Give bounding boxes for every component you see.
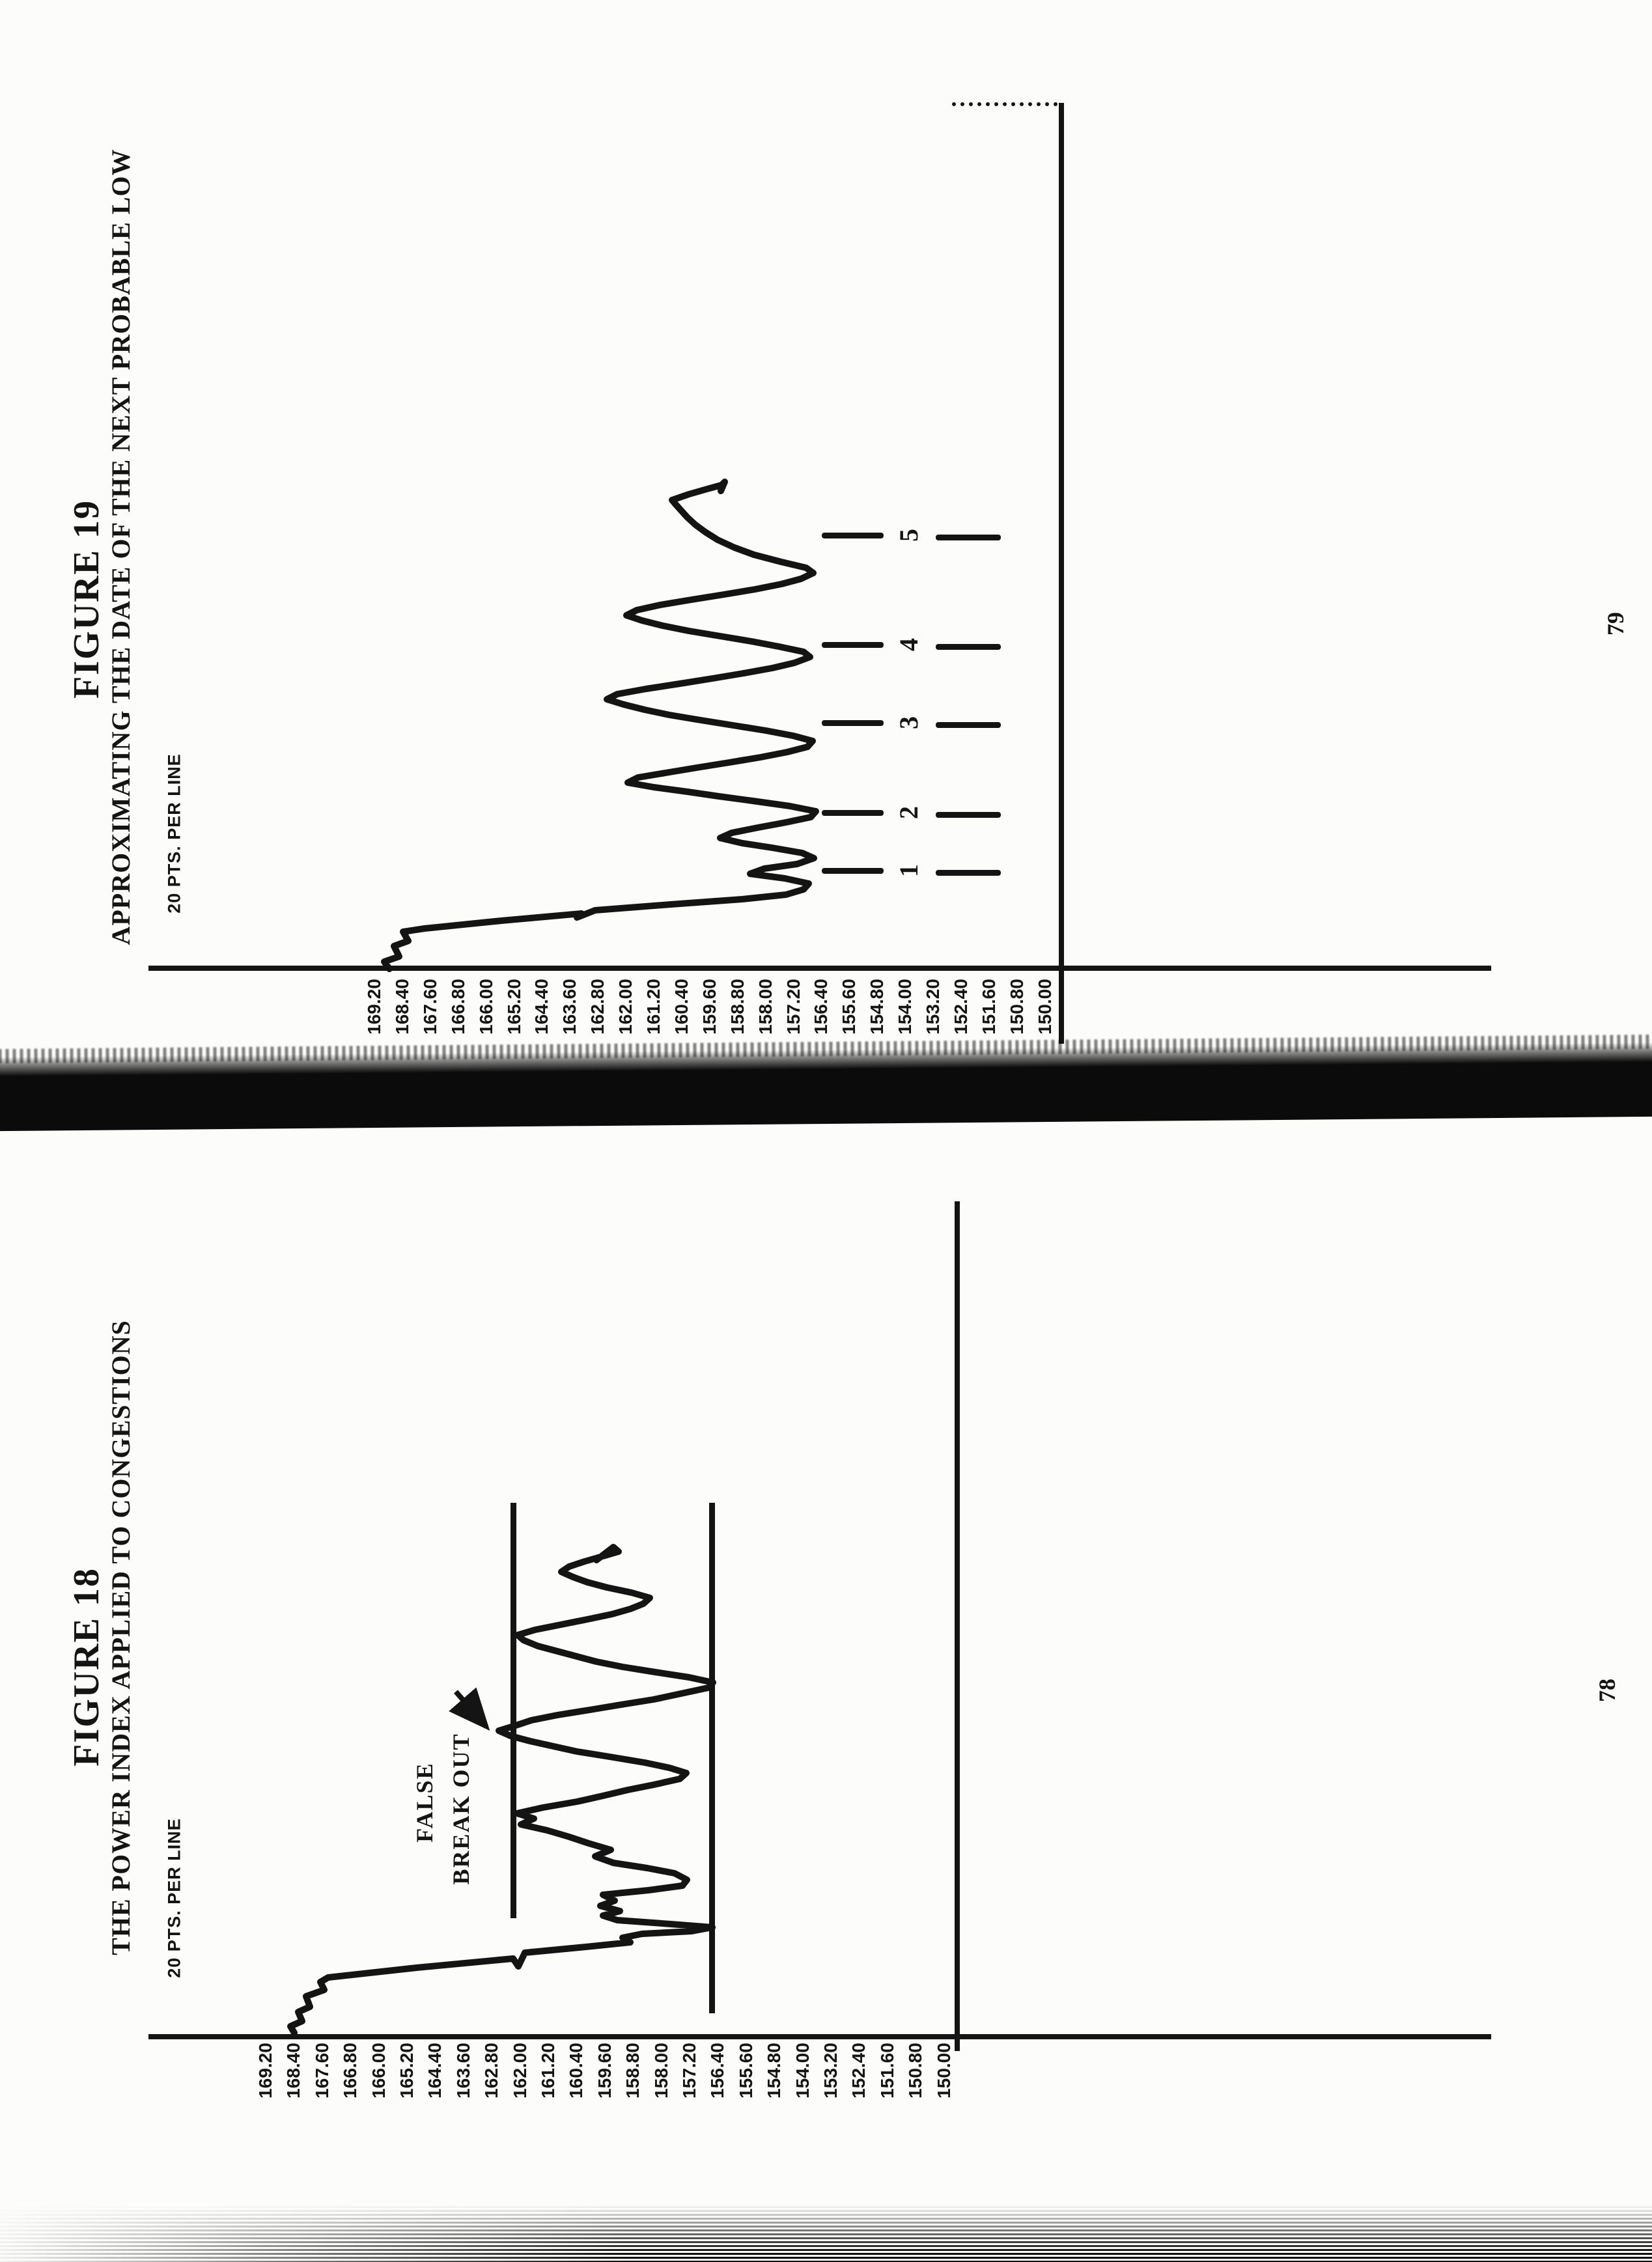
- dotted-guide-dot: [1011, 102, 1015, 106]
- axis-tick-label: 158.00: [652, 2043, 671, 2099]
- axis-tick-label: 166.80: [449, 979, 468, 1035]
- projection-dash-right: [936, 644, 1001, 650]
- price-curve-figure18: [290, 1547, 713, 2033]
- projection-mark-number: 5: [896, 529, 922, 542]
- false-breakout-label-line1: FALSE: [413, 1762, 436, 1842]
- axis-tick-label: 160.40: [673, 979, 691, 1035]
- dotted-guide-dot: [1003, 102, 1007, 106]
- projection-mark-number: 2: [896, 806, 922, 819]
- projection-dash-right: [936, 812, 1001, 818]
- axis-tick-label: 154.00: [896, 979, 914, 1035]
- axis-tick-label: 158.80: [624, 2043, 642, 2099]
- axis-tick-label: 166.00: [477, 979, 496, 1035]
- false-breakout-label-line2: BREAK OUT: [449, 1733, 473, 1884]
- axis-tick-label: 165.20: [505, 979, 524, 1035]
- dotted-guide-dot: [986, 102, 990, 106]
- axis-tick-label: 150.80: [1008, 979, 1026, 1035]
- dotted-guide-dot: [1037, 102, 1041, 106]
- figure18-congestion-upper-line: [511, 1503, 516, 1918]
- figure19-label: FIGURE 19: [68, 499, 105, 699]
- book-gutter-shadow: [0, 1042, 1652, 1132]
- book-scan-spread: FIGURE 19 APPROXIMATING THE DATE OF THE …: [0, 0, 1652, 2262]
- figure19-price-axis-line: [148, 966, 1491, 971]
- axis-tick-label: 162.00: [617, 979, 635, 1035]
- page-number-78: 78: [1595, 1679, 1619, 1702]
- axis-tick-label: 156.40: [812, 979, 830, 1035]
- dotted-guide-dot: [977, 102, 981, 106]
- axis-tick-label: 162.80: [483, 2043, 501, 2099]
- figure18-price-axis-line: [148, 2034, 1491, 2039]
- figure19-baseline-150-line: [1059, 103, 1064, 1044]
- axis-tick-label: 150.80: [906, 2043, 925, 2099]
- dotted-guide-dot: [1045, 102, 1049, 106]
- axis-tick-label: 151.60: [980, 979, 998, 1035]
- axis-tick-label: 164.40: [426, 2043, 444, 2099]
- axis-tick-label: 154.80: [765, 2043, 783, 2099]
- dotted-guide-dot: [969, 102, 973, 106]
- axis-tick-label: 150.00: [935, 2043, 953, 2099]
- figure19-title: APPROXIMATING THE DATE OF THE NEXT PROBA…: [108, 148, 134, 945]
- axis-tick-label: 153.20: [924, 979, 942, 1035]
- dotted-guide-dot: [1028, 102, 1032, 106]
- projection-dash-right: [936, 722, 1001, 728]
- projection-mark-number: 4: [896, 638, 922, 651]
- projection-dash-left: [822, 868, 884, 874]
- dotted-guide-dot: [952, 102, 956, 106]
- page-edge-scan-band: [0, 2206, 1652, 2262]
- axis-tick-label: 161.20: [539, 2043, 557, 2099]
- axis-tick-label: 158.00: [757, 979, 775, 1035]
- axis-tick-label: 159.60: [596, 2043, 614, 2099]
- axis-tick-label: 163.60: [561, 979, 579, 1035]
- axis-tick-label: 150.00: [1036, 979, 1054, 1035]
- axis-tick-label: 169.20: [257, 2043, 275, 2099]
- axis-tick-label: 154.00: [794, 2043, 812, 2099]
- axis-tick-label: 163.60: [455, 2043, 473, 2099]
- projection-dash-right: [936, 870, 1001, 876]
- figure18-congestion-lower-line: [709, 1503, 715, 2013]
- axis-tick-label: 158.80: [729, 979, 747, 1035]
- axis-tick-label: 166.00: [370, 2043, 388, 2099]
- dotted-guide-dot: [1020, 102, 1024, 106]
- figure18-title: THE POWER INDEX APPLIED TO CONGESTIONS: [108, 1320, 134, 1955]
- axis-tick-label: 161.20: [645, 979, 663, 1035]
- figure18-scale-note: 20 PTS. PER LINE: [166, 1818, 184, 1978]
- axis-tick-label: 155.60: [737, 2043, 755, 2099]
- axis-tick-label: 166.80: [341, 2043, 359, 2099]
- axis-tick-label: 153.20: [822, 2043, 840, 2099]
- axis-tick-label: 152.40: [850, 2043, 868, 2099]
- axis-tick-label: 168.40: [285, 2043, 303, 2099]
- dotted-guide-dot: [994, 102, 998, 106]
- axis-tick-label: 157.20: [785, 979, 803, 1035]
- axis-tick-label: 152.40: [952, 979, 970, 1035]
- axis-tick-label: 167.60: [421, 979, 440, 1035]
- chart-curves-overlay: [0, 0, 1652, 2262]
- axis-tick-label: 165.20: [398, 2043, 416, 2099]
- projection-mark-number: 3: [896, 716, 922, 729]
- figure19-scale-note: 20 PTS. PER LINE: [166, 753, 184, 914]
- projection-mark-number: 1: [896, 864, 922, 877]
- false-breakout-arrow: [456, 1692, 486, 1727]
- page-number-79: 79: [1604, 612, 1627, 635]
- axis-tick-label: 157.20: [680, 2043, 699, 2099]
- axis-tick-label: 167.60: [313, 2043, 331, 2099]
- axis-tick-label: 162.80: [589, 979, 607, 1035]
- projection-dash-right: [936, 535, 1001, 540]
- axis-tick-label: 168.40: [393, 979, 412, 1035]
- projection-dash-left: [822, 810, 884, 816]
- axis-tick-label: 151.60: [878, 2043, 897, 2099]
- axis-tick-label: 160.40: [567, 2043, 585, 2099]
- axis-tick-label: 155.60: [840, 979, 858, 1035]
- dotted-guide-dot: [960, 102, 964, 106]
- price-curve-figure19: [384, 482, 816, 969]
- axis-tick-label: 162.00: [511, 2043, 529, 2099]
- figure18-baseline-150-line: [955, 1201, 960, 2051]
- axis-tick-label: 169.20: [365, 979, 384, 1035]
- axis-tick-label: 154.80: [868, 979, 886, 1035]
- axis-tick-label: 164.40: [533, 979, 551, 1035]
- axis-tick-label: 156.40: [708, 2043, 727, 2099]
- projection-dash-left: [822, 720, 884, 726]
- projection-dash-left: [822, 642, 884, 648]
- projection-dash-left: [822, 533, 884, 538]
- dotted-guide-dot: [1054, 102, 1057, 106]
- axis-tick-label: 159.60: [701, 979, 719, 1035]
- figure18-label: FIGURE 18: [68, 1567, 105, 1766]
